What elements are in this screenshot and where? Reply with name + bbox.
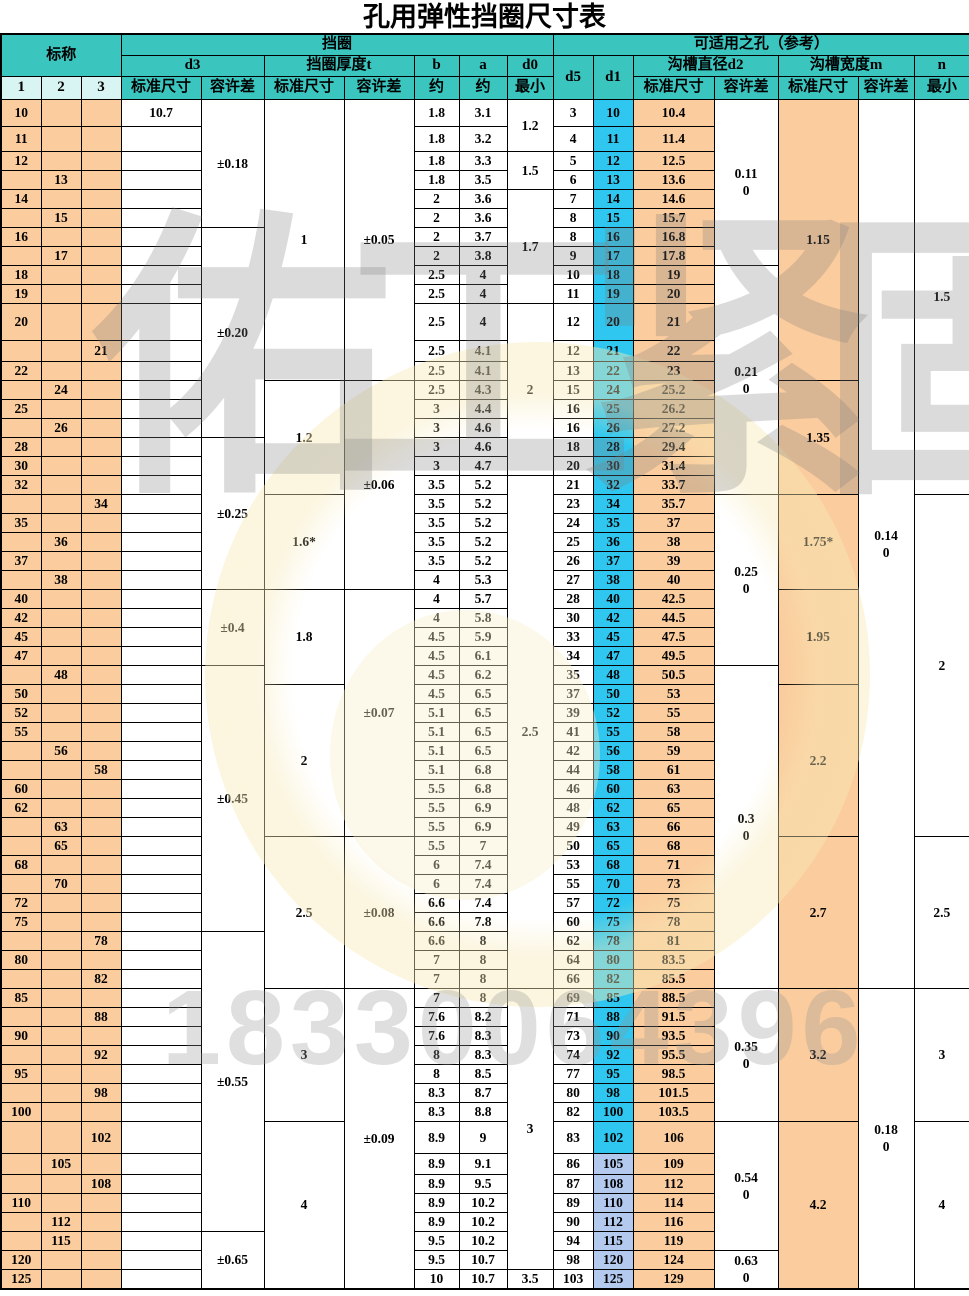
d3-std-100 — [121, 1102, 201, 1121]
header-t-std: 标准尺寸 — [264, 76, 344, 99]
d5-35: 24 — [553, 513, 593, 532]
d2-std-36: 38 — [633, 532, 714, 551]
nominal1-56 — [1, 741, 41, 760]
d5-88: 71 — [553, 1007, 593, 1026]
b-63: 5.5 — [414, 817, 459, 836]
nominal3-14 — [81, 189, 121, 208]
circlip-size-table-sheet: 孔用弹性挡圈尺寸表 标称 挡圈 可适用之孔（参考） d3 挡圈厚度t b a d… — [0, 0, 969, 1296]
header-d1: d1 — [593, 55, 633, 99]
nmin-cell-85: 3 — [914, 988, 969, 1121]
table-row-34: 341.6*3.55.2233435.70.25 01.75*2 — [1, 494, 969, 513]
b-12: 1.8 — [414, 151, 459, 170]
d1-68: 68 — [593, 855, 633, 874]
nominal2-95 — [41, 1064, 81, 1083]
nominal3-115 — [81, 1231, 121, 1250]
nominal2-10 — [41, 99, 81, 126]
header-m-tol: 容许差 — [858, 76, 914, 99]
nominal1-95: 95 — [1, 1064, 41, 1083]
b-75: 6.6 — [414, 912, 459, 931]
b-47: 4.5 — [414, 646, 459, 665]
nominal3-48 — [81, 665, 121, 684]
d3-std-48 — [121, 665, 201, 684]
a-102: 9 — [459, 1121, 507, 1153]
header-nominal: 标称 — [1, 34, 121, 76]
header-b-approx: 约 — [414, 76, 459, 99]
b-100: 8.3 — [414, 1102, 459, 1121]
header-d2-tol: 容许差 — [714, 76, 778, 99]
a-38: 5.3 — [459, 570, 507, 589]
nominal1-62: 62 — [1, 798, 41, 817]
d2-std-37: 39 — [633, 551, 714, 570]
d0-cell-125: 3.5 — [507, 1269, 553, 1289]
d3-std-30 — [121, 456, 201, 475]
d3-std-102 — [121, 1121, 201, 1153]
b-102: 8.9 — [414, 1121, 459, 1153]
d2-std-45: 47.5 — [633, 627, 714, 646]
d2-std-98: 101.5 — [633, 1083, 714, 1102]
nominal3-70 — [81, 874, 121, 893]
b-35: 3.5 — [414, 513, 459, 532]
d5-28: 18 — [553, 437, 593, 456]
d5-20: 12 — [553, 303, 593, 340]
b-115: 9.5 — [414, 1231, 459, 1250]
a-30: 4.7 — [459, 456, 507, 475]
d3-std-70 — [121, 874, 201, 893]
d3-std-65 — [121, 836, 201, 855]
d1-75: 75 — [593, 912, 633, 931]
d5-58: 44 — [553, 760, 593, 779]
nominal2-42 — [41, 608, 81, 627]
d5-15: 8 — [553, 208, 593, 227]
header-thickness-t: 挡圈厚度t — [264, 55, 414, 76]
nominal2-108 — [41, 1174, 81, 1193]
a-16: 3.7 — [459, 227, 507, 246]
d1-17: 17 — [593, 246, 633, 265]
nominal1-88 — [1, 1007, 41, 1026]
nominal1-70 — [1, 874, 41, 893]
nominal2-35 — [41, 513, 81, 532]
d1-120: 120 — [593, 1250, 633, 1269]
nmin-cell-34: 2 — [914, 494, 969, 836]
d1-37: 37 — [593, 551, 633, 570]
a-63: 6.9 — [459, 817, 507, 836]
a-60: 6.8 — [459, 779, 507, 798]
nmin-cell-65: 2.5 — [914, 836, 969, 988]
nominal3-38 — [81, 570, 121, 589]
d3tol-cell-28: ±0.25 — [201, 437, 264, 589]
d5-25: 16 — [553, 399, 593, 418]
d1-47: 47 — [593, 646, 633, 665]
d3-std-11 — [121, 126, 201, 151]
d1-82: 82 — [593, 969, 633, 988]
d3-std-15 — [121, 208, 201, 227]
d3-std-22 — [121, 361, 201, 380]
b-105: 8.9 — [414, 1153, 459, 1174]
d3-std-42 — [121, 608, 201, 627]
d5-98: 80 — [553, 1083, 593, 1102]
d3tol-cell-115: ±0.65 — [201, 1231, 264, 1289]
nominal3-52 — [81, 703, 121, 722]
d1-125: 125 — [593, 1269, 633, 1289]
d2-std-30: 31.4 — [633, 456, 714, 475]
nominal3-47 — [81, 646, 121, 665]
nominal3-110 — [81, 1193, 121, 1212]
d1-20: 20 — [593, 303, 633, 340]
header-nom-col-3: 3 — [81, 76, 121, 99]
d2-std-18: 19 — [633, 265, 714, 284]
a-115: 10.2 — [459, 1231, 507, 1250]
b-125: 10 — [414, 1269, 459, 1289]
d1-18: 18 — [593, 265, 633, 284]
d2-std-25: 26.2 — [633, 399, 714, 418]
nominal1-12: 12 — [1, 151, 41, 170]
d5-75: 60 — [553, 912, 593, 931]
d3-std-90 — [121, 1026, 201, 1045]
d5-65: 50 — [553, 836, 593, 855]
a-37: 5.2 — [459, 551, 507, 570]
nominal3-19 — [81, 284, 121, 303]
nominal1-20: 20 — [1, 303, 41, 340]
nominal2-12 — [41, 151, 81, 170]
d1-62: 62 — [593, 798, 633, 817]
b-34: 3.5 — [414, 494, 459, 513]
a-62: 6.9 — [459, 798, 507, 817]
b-19: 2.5 — [414, 284, 459, 303]
d2-std-82: 85.5 — [633, 969, 714, 988]
b-16: 2 — [414, 227, 459, 246]
mstd-cell-40: 1.95 — [778, 589, 858, 684]
nominal3-45 — [81, 627, 121, 646]
d2-std-15: 15.7 — [633, 208, 714, 227]
nominal3-40 — [81, 589, 121, 608]
nmin-cell-10: 1.5 — [914, 99, 969, 494]
nominal1-10: 10 — [1, 99, 41, 126]
b-65: 5.5 — [414, 836, 459, 855]
a-82: 8 — [459, 969, 507, 988]
nominal1-26 — [1, 418, 41, 437]
d5-68: 53 — [553, 855, 593, 874]
d2-std-42: 44.5 — [633, 608, 714, 627]
nominal2-68 — [41, 855, 81, 874]
d3-std-120 — [121, 1250, 201, 1269]
d2tol-cell-120: 0.63 0 — [714, 1250, 778, 1289]
header-n-min: 最小 — [914, 76, 969, 99]
d3-std-78 — [121, 931, 201, 950]
d2-std-65: 68 — [633, 836, 714, 855]
nominal2-30 — [41, 456, 81, 475]
a-36: 5.2 — [459, 532, 507, 551]
nominal1-52: 52 — [1, 703, 41, 722]
a-12: 3.3 — [459, 151, 507, 170]
b-68: 6 — [414, 855, 459, 874]
d1-52: 52 — [593, 703, 633, 722]
nominal3-11 — [81, 126, 121, 151]
d2-std-34: 35.7 — [633, 494, 714, 513]
header-groove-diameter-d2: 沟槽直径d2 — [633, 55, 778, 76]
nominal1-11: 11 — [1, 126, 41, 151]
nominal2-47 — [41, 646, 81, 665]
mstd-cell-24: 1.35 — [778, 380, 858, 494]
nominal2-58 — [41, 760, 81, 779]
d1-11: 11 — [593, 126, 633, 151]
nominal1-38 — [1, 570, 41, 589]
d5-45: 33 — [553, 627, 593, 646]
nominal1-32: 32 — [1, 475, 41, 494]
d5-16: 8 — [553, 227, 593, 246]
d5-50: 37 — [553, 684, 593, 703]
nominal1-75: 75 — [1, 912, 41, 931]
header-d2-std: 标准尺寸 — [633, 76, 714, 99]
tstd-cell-24: 1.2 — [264, 380, 344, 494]
nominal2-63: 63 — [41, 817, 81, 836]
d2tol-cell-10: 0.11 0 — [714, 99, 778, 265]
nominal1-28: 28 — [1, 437, 41, 456]
d5-100: 82 — [553, 1102, 593, 1121]
d2-std-80: 83.5 — [633, 950, 714, 969]
nominal2-105: 105 — [41, 1153, 81, 1174]
nominal1-40: 40 — [1, 589, 41, 608]
d1-34: 34 — [593, 494, 633, 513]
nominal3-60 — [81, 779, 121, 798]
d2-std-21: 22 — [633, 340, 714, 361]
d3-std-40 — [121, 589, 201, 608]
d5-40: 28 — [553, 589, 593, 608]
nominal1-90: 90 — [1, 1026, 41, 1045]
b-95: 8 — [414, 1064, 459, 1083]
a-85: 8 — [459, 988, 507, 1007]
d1-42: 42 — [593, 608, 633, 627]
a-11: 3.2 — [459, 126, 507, 151]
d1-12: 12 — [593, 151, 633, 170]
nominal3-13 — [81, 170, 121, 189]
a-68: 7.4 — [459, 855, 507, 874]
ttol-cell-10: ±0.05 — [344, 99, 414, 380]
d3-std-10: 10.7 — [121, 99, 201, 126]
nominal1-78 — [1, 931, 41, 950]
d5-17: 9 — [553, 246, 593, 265]
d3-std-13 — [121, 170, 201, 189]
d3-std-18 — [121, 265, 201, 284]
d1-110: 110 — [593, 1193, 633, 1212]
tstd-cell-65: 2.5 — [264, 836, 344, 988]
b-70: 6 — [414, 874, 459, 893]
b-14: 2 — [414, 189, 459, 208]
nominal2-48: 48 — [41, 665, 81, 684]
a-45: 5.9 — [459, 627, 507, 646]
d2-std-102: 106 — [633, 1121, 714, 1153]
d5-115: 94 — [553, 1231, 593, 1250]
nominal3-102: 102 — [81, 1121, 121, 1153]
nominal2-20 — [41, 303, 81, 340]
d3-std-35 — [121, 513, 201, 532]
a-13: 3.5 — [459, 170, 507, 189]
header-d3-std: 标准尺寸 — [121, 76, 201, 99]
d3tol-cell-10: ±0.18 — [201, 99, 264, 227]
d3-std-88 — [121, 1007, 201, 1026]
nominal1-13 — [1, 170, 41, 189]
nominal3-92: 92 — [81, 1045, 121, 1064]
nominal3-108: 108 — [81, 1174, 121, 1193]
nominal1-21 — [1, 340, 41, 361]
d2-std-35: 37 — [633, 513, 714, 532]
d1-45: 45 — [593, 627, 633, 646]
header-groove-width-m: 沟槽宽度m — [778, 55, 914, 76]
tstd-cell-34: 1.6* — [264, 494, 344, 589]
tstd-cell-40: 1.8 — [264, 589, 344, 684]
d2-std-70: 73 — [633, 874, 714, 893]
d1-60: 60 — [593, 779, 633, 798]
b-11: 1.8 — [414, 126, 459, 151]
a-75: 7.8 — [459, 912, 507, 931]
b-24: 2.5 — [414, 380, 459, 399]
d3-std-108 — [121, 1174, 201, 1193]
nominal1-72: 72 — [1, 893, 41, 912]
d2-std-17: 17.8 — [633, 246, 714, 265]
d5-78: 62 — [553, 931, 593, 950]
nominal1-48 — [1, 665, 41, 684]
d1-102: 102 — [593, 1121, 633, 1153]
d5-19: 11 — [553, 284, 593, 303]
d2-std-12: 12.5 — [633, 151, 714, 170]
b-13: 1.8 — [414, 170, 459, 189]
b-15: 2 — [414, 208, 459, 227]
d5-95: 77 — [553, 1064, 593, 1083]
d3-std-112 — [121, 1212, 201, 1231]
table-row-10: 1010.7±0.181±0.051.83.11.231010.40.11 01… — [1, 99, 969, 126]
a-125: 10.7 — [459, 1269, 507, 1289]
d2-std-28: 29.4 — [633, 437, 714, 456]
mstd-cell-65: 2.7 — [778, 836, 858, 988]
d2-std-40: 42.5 — [633, 589, 714, 608]
d1-26: 26 — [593, 418, 633, 437]
d5-102: 83 — [553, 1121, 593, 1153]
nominal1-16: 16 — [1, 227, 41, 246]
nominal3-37 — [81, 551, 121, 570]
d0-cell-32: 2.5 — [507, 475, 553, 988]
header-a-approx: 约 — [459, 76, 507, 99]
a-34: 5.2 — [459, 494, 507, 513]
a-120: 10.7 — [459, 1250, 507, 1269]
a-24: 4.3 — [459, 380, 507, 399]
nominal1-58 — [1, 760, 41, 779]
nominal3-63 — [81, 817, 121, 836]
nominal3-120 — [81, 1250, 121, 1269]
d3-std-21 — [121, 340, 201, 361]
nominal1-24 — [1, 380, 41, 399]
d3-std-58 — [121, 760, 201, 779]
nominal3-32 — [81, 475, 121, 494]
nominal2-26: 26 — [41, 418, 81, 437]
nominal2-110 — [41, 1193, 81, 1212]
ttol-cell-85: ±0.09 — [344, 988, 414, 1289]
d5-37: 26 — [553, 551, 593, 570]
d2tol-cell-102: 0.54 0 — [714, 1121, 778, 1250]
b-88: 7.6 — [414, 1007, 459, 1026]
d5-62: 48 — [553, 798, 593, 817]
b-18: 2.5 — [414, 265, 459, 284]
nominal1-80: 80 — [1, 950, 41, 969]
nominal3-22 — [81, 361, 121, 380]
page-title: 孔用弹性挡圈尺寸表 — [0, 0, 969, 33]
b-60: 5.5 — [414, 779, 459, 798]
b-90: 7.6 — [414, 1026, 459, 1045]
a-105: 9.1 — [459, 1153, 507, 1174]
b-32: 3.5 — [414, 475, 459, 494]
d3-std-19 — [121, 284, 201, 303]
a-58: 6.8 — [459, 760, 507, 779]
d5-72: 57 — [553, 893, 593, 912]
mstd-cell-50: 2.2 — [778, 684, 858, 836]
a-47: 6.1 — [459, 646, 507, 665]
nominal1-25: 25 — [1, 399, 41, 418]
d3-std-115 — [121, 1231, 201, 1250]
nominal1-22: 22 — [1, 361, 41, 380]
a-40: 5.7 — [459, 589, 507, 608]
nominal3-15 — [81, 208, 121, 227]
header-d3-tol: 容许差 — [201, 76, 264, 99]
b-112: 8.9 — [414, 1212, 459, 1231]
mstd-cell-10: 1.15 — [778, 99, 858, 380]
d3-std-14 — [121, 189, 201, 208]
d1-105: 105 — [593, 1153, 633, 1174]
a-65: 7 — [459, 836, 507, 855]
d2-std-90: 93.5 — [633, 1026, 714, 1045]
d1-108: 108 — [593, 1174, 633, 1193]
nominal3-62 — [81, 798, 121, 817]
d1-80: 80 — [593, 950, 633, 969]
b-36: 3.5 — [414, 532, 459, 551]
d2-std-50: 53 — [633, 684, 714, 703]
a-28: 4.6 — [459, 437, 507, 456]
nominal3-56 — [81, 741, 121, 760]
nominal3-21: 21 — [81, 340, 121, 361]
table-row-102: 10248.99831021060.54 04.24 — [1, 1121, 969, 1153]
d3-std-95 — [121, 1064, 201, 1083]
d1-32: 32 — [593, 475, 633, 494]
nominal2-65: 65 — [41, 836, 81, 855]
d3-std-12 — [121, 151, 201, 170]
nominal2-40 — [41, 589, 81, 608]
d3tol-cell-40: ±0.4 — [201, 589, 264, 665]
nominal3-65 — [81, 836, 121, 855]
nominal3-88: 88 — [81, 1007, 121, 1026]
d2tol-cell-18: 0.21 0 — [714, 265, 778, 494]
nominal2-75 — [41, 912, 81, 931]
d3-std-37 — [121, 551, 201, 570]
a-21: 4.1 — [459, 340, 507, 361]
d2-std-24: 25.2 — [633, 380, 714, 399]
nominal2-15: 15 — [41, 208, 81, 227]
b-62: 5.5 — [414, 798, 459, 817]
d2-std-125: 129 — [633, 1269, 714, 1289]
nominal2-88 — [41, 1007, 81, 1026]
d2-std-120: 124 — [633, 1250, 714, 1269]
nominal1-112 — [1, 1212, 41, 1231]
nominal1-82 — [1, 969, 41, 988]
d5-105: 86 — [553, 1153, 593, 1174]
a-110: 10.2 — [459, 1193, 507, 1212]
nominal2-45 — [41, 627, 81, 646]
nominal3-95 — [81, 1064, 121, 1083]
d2-std-10: 10.4 — [633, 99, 714, 126]
d2-std-58: 61 — [633, 760, 714, 779]
nominal2-17: 17 — [41, 246, 81, 265]
d1-30: 30 — [593, 456, 633, 475]
d3-std-34 — [121, 494, 201, 513]
nominal2-72 — [41, 893, 81, 912]
nominal1-47: 47 — [1, 646, 41, 665]
a-56: 6.5 — [459, 741, 507, 760]
